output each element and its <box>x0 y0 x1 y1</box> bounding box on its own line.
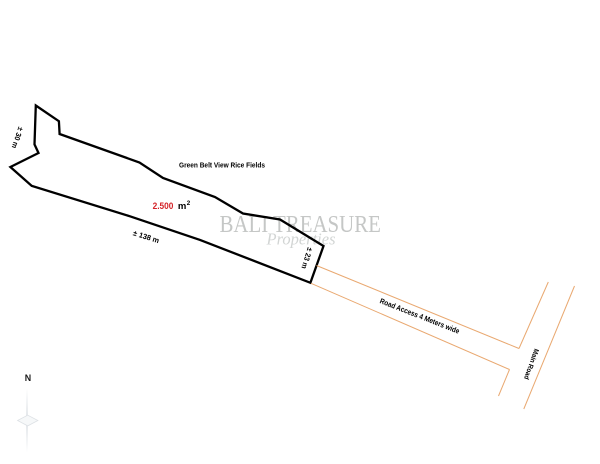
svg-text:N: N <box>25 373 31 383</box>
svg-text:2.500: 2.500 <box>153 201 174 212</box>
svg-text:2: 2 <box>187 200 191 207</box>
svg-text:Green Belt View Rice Fields: Green Belt View Rice Fields <box>179 161 265 170</box>
svg-text:m: m <box>178 201 186 212</box>
